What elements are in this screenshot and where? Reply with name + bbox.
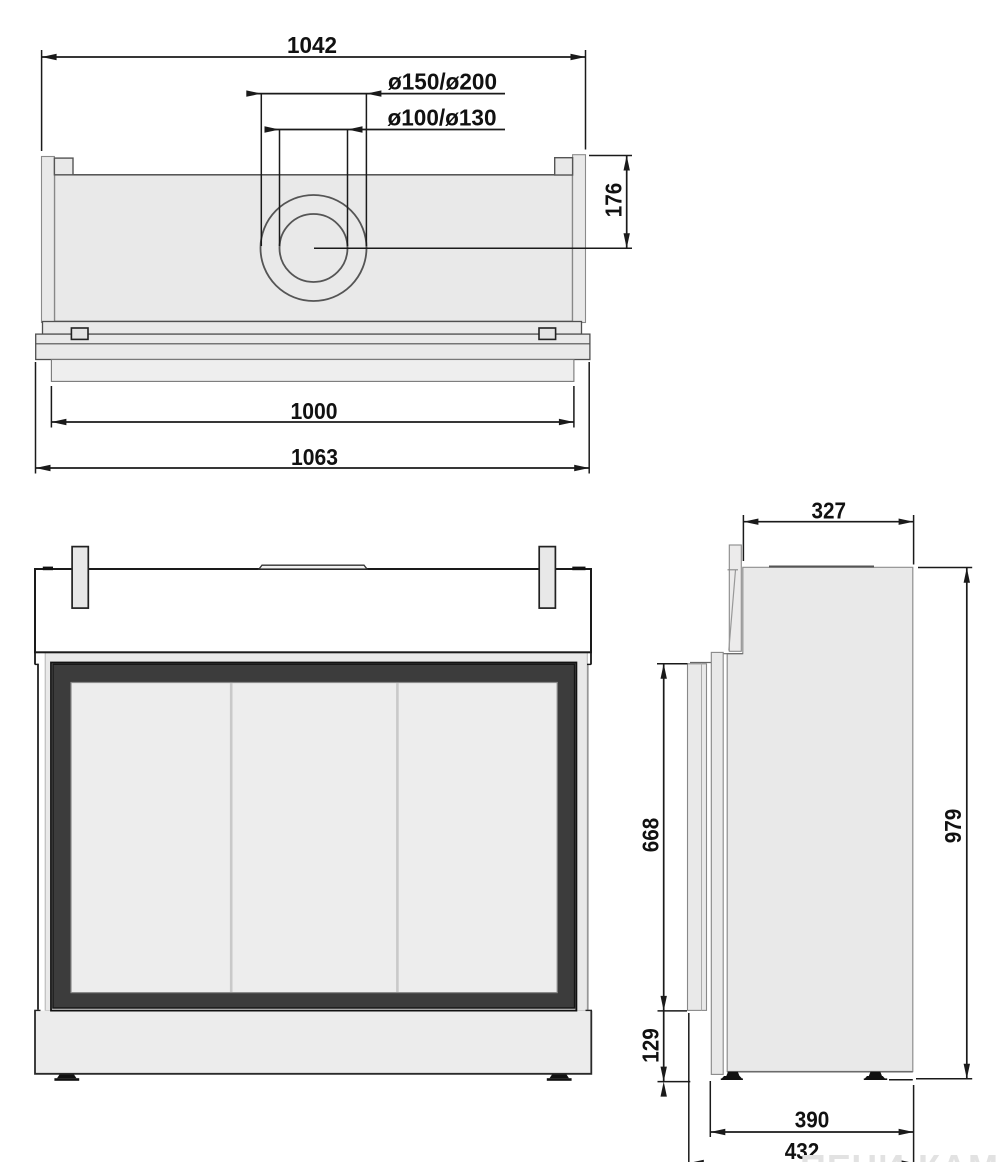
svg-text:1063: 1063 bbox=[291, 444, 338, 470]
svg-text:979: 979 bbox=[940, 809, 966, 844]
svg-text:1042: 1042 bbox=[287, 32, 337, 58]
svg-text:129: 129 bbox=[638, 1028, 664, 1063]
svg-text:ø150/ø200: ø150/ø200 bbox=[388, 69, 497, 95]
svg-text:ø100/ø130: ø100/ø130 bbox=[388, 105, 497, 131]
svg-text:1000: 1000 bbox=[291, 398, 338, 424]
svg-text:ПЕЧИ-КАМИНЫ: ПЕЧИ-КАМИНЫ bbox=[800, 1147, 1000, 1162]
svg-text:668: 668 bbox=[638, 818, 664, 853]
svg-text:390: 390 bbox=[795, 1107, 830, 1133]
svg-text:327: 327 bbox=[812, 498, 847, 524]
svg-text:176: 176 bbox=[601, 183, 627, 218]
